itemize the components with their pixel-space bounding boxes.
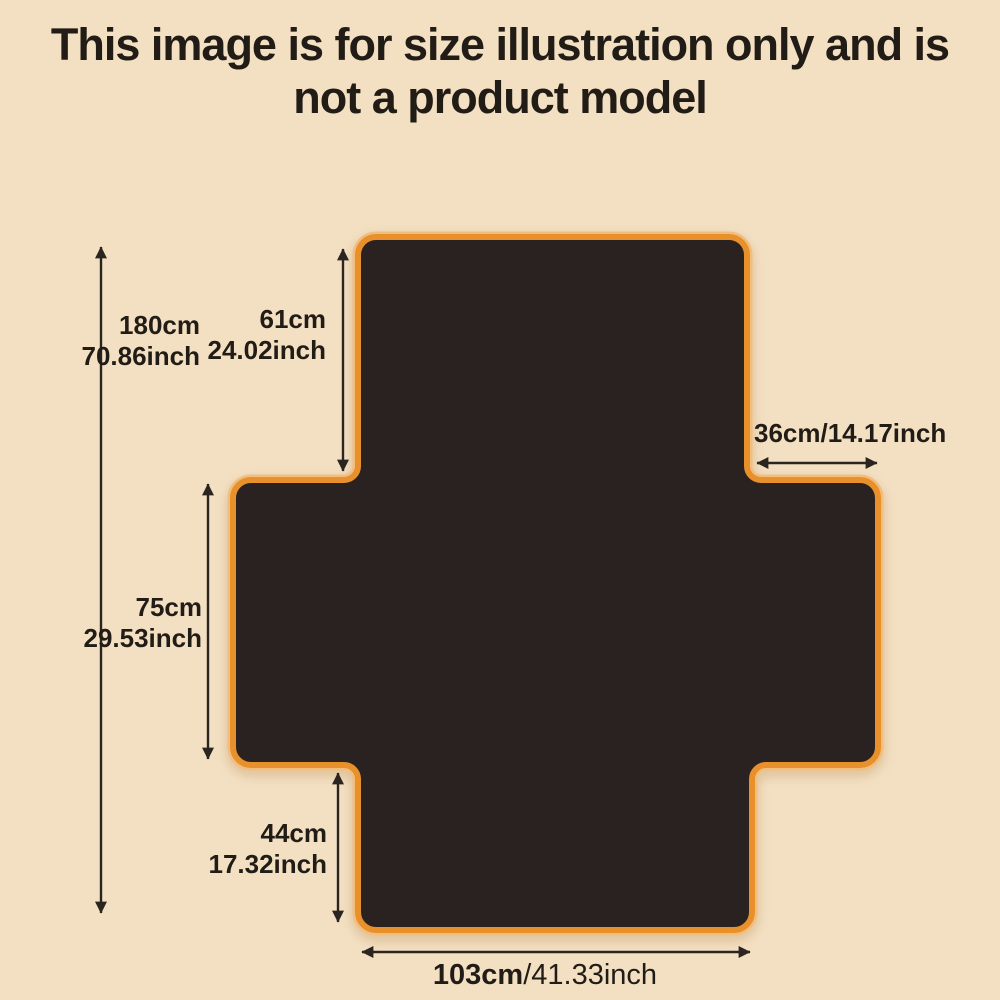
dimension-label-total-height: 180cm 70.86inch bbox=[60, 310, 200, 372]
dimension-label-seat-depth: 75cm 29.53inch bbox=[62, 592, 202, 654]
disclaimer-title: This image is for size illustration only… bbox=[0, 18, 1000, 124]
dimension-inch: 70.86inch bbox=[60, 341, 200, 372]
dimension-label-bottom-width: 103cm/41.33inch bbox=[370, 960, 720, 991]
dimension-label-front-height: 44cm 17.32inch bbox=[187, 818, 327, 880]
dimension-cm: 61cm bbox=[186, 304, 326, 335]
dimension-inch: /14.17inch bbox=[821, 418, 947, 448]
disclaimer-line-2: not a product model bbox=[0, 71, 1000, 124]
dimension-cm: 180cm bbox=[60, 310, 200, 341]
dimension-label-arm-width: 36cm/14.17inch bbox=[754, 418, 946, 449]
dimension-inch: /41.33inch bbox=[523, 959, 657, 991]
dimension-inch: 29.53inch bbox=[62, 623, 202, 654]
dimension-cm: 36cm bbox=[754, 418, 821, 448]
diagram-canvas bbox=[0, 0, 1000, 1000]
size-illustration-page: This image is for size illustration only… bbox=[0, 0, 1000, 1000]
dimension-cm: 103cm bbox=[433, 959, 523, 991]
dimension-cm: 75cm bbox=[62, 592, 202, 623]
dimension-label-back-height: 61cm 24.02inch bbox=[186, 304, 326, 366]
dimension-cm: 44cm bbox=[187, 818, 327, 849]
dimension-inch: 17.32inch bbox=[187, 849, 327, 880]
dimension-inch: 24.02inch bbox=[186, 335, 326, 366]
disclaimer-line-1: This image is for size illustration only… bbox=[0, 18, 1000, 71]
